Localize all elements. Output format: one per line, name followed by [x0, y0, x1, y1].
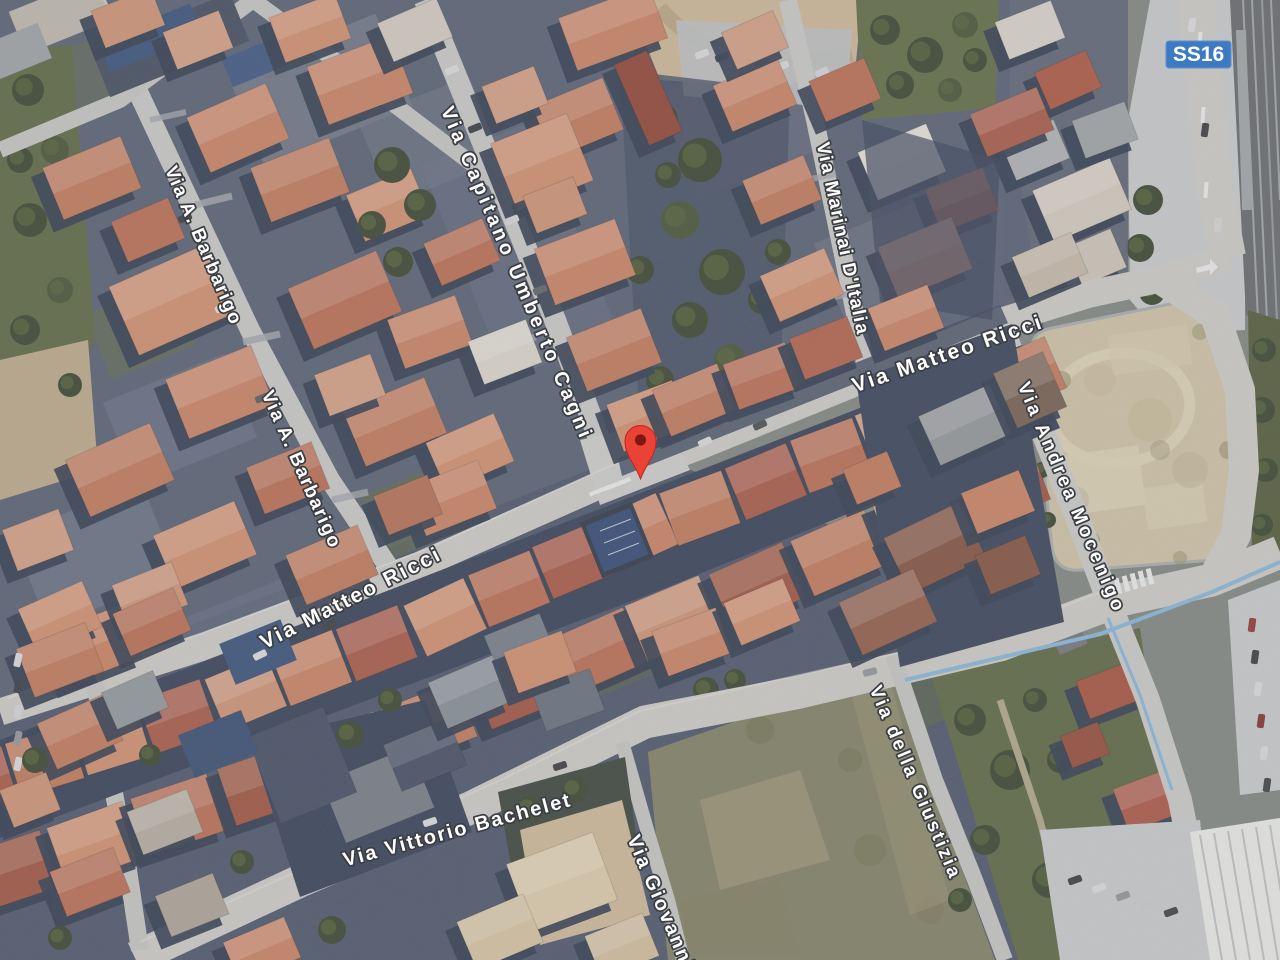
svg-text:SS16: SS16: [1173, 43, 1224, 66]
